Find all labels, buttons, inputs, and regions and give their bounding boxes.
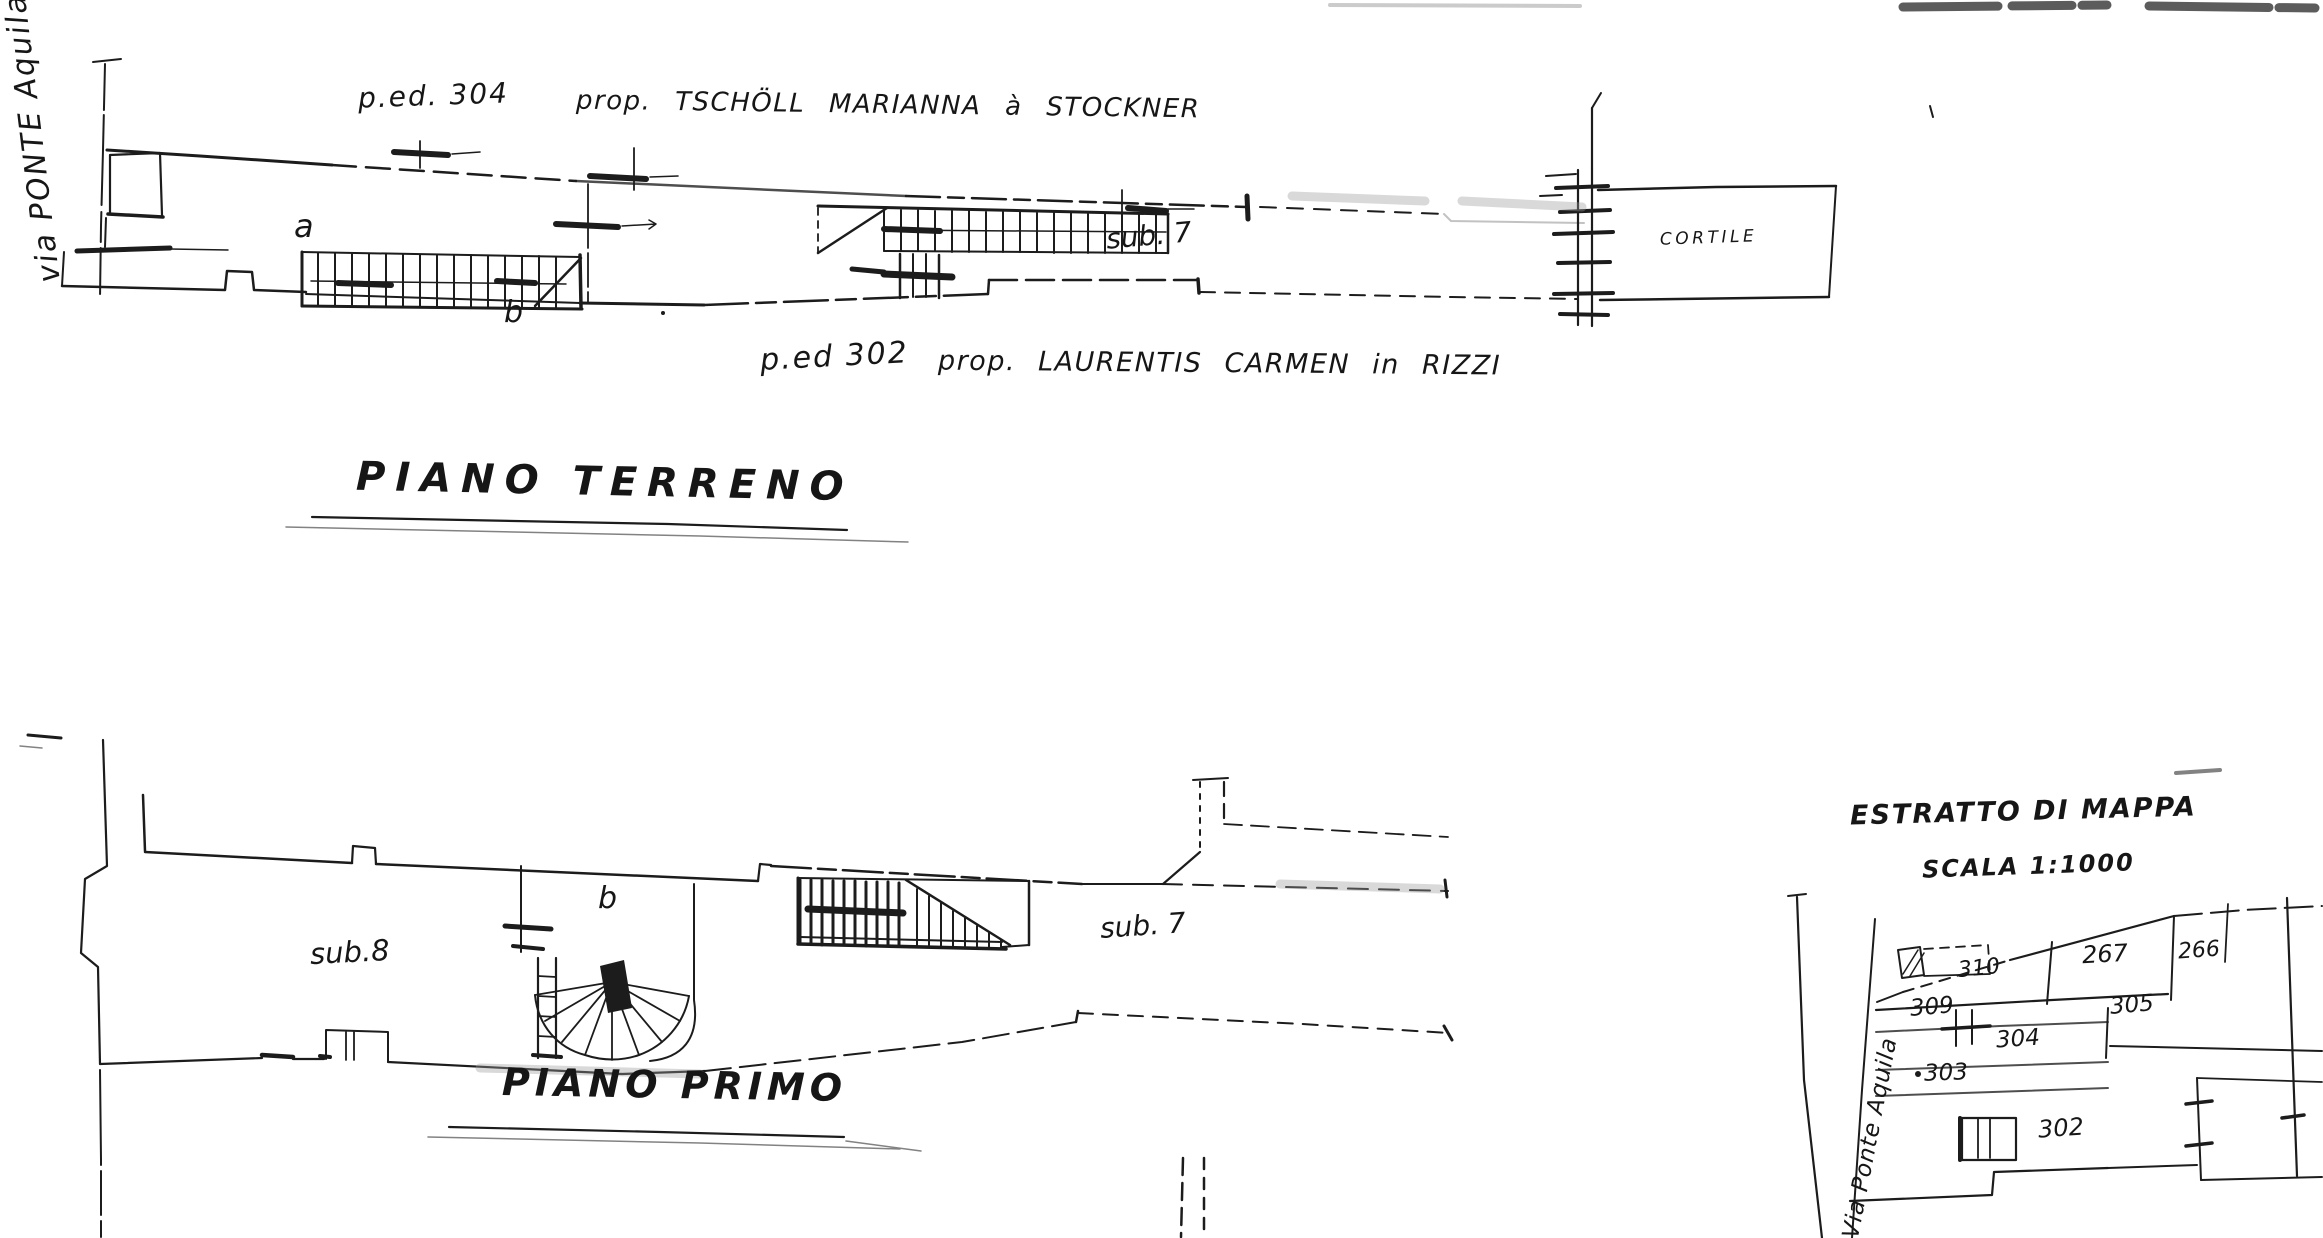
door-opening bbox=[394, 141, 480, 168]
room-b-label-ground: b bbox=[504, 298, 523, 328]
left-boundary bbox=[81, 740, 107, 1064]
door-opening bbox=[590, 148, 678, 190]
map-parcel-305-label: 305 bbox=[2109, 992, 2155, 1019]
first-floor-title: PIANO PRIMO bbox=[502, 1063, 848, 1107]
door-opening bbox=[556, 220, 656, 229]
ground-title-underline bbox=[286, 517, 908, 542]
stair-first-floor bbox=[798, 878, 1029, 949]
parcel-304-label: p.ed. 304 bbox=[358, 79, 510, 112]
section-dashed-lines bbox=[1181, 1158, 1204, 1237]
room-a-label: a bbox=[294, 210, 314, 242]
map-parcel-304-label: 304 bbox=[1995, 1026, 2040, 1052]
upper-connector-lines bbox=[1163, 778, 1448, 884]
cortile-label: CORTILE bbox=[1660, 228, 1758, 248]
map-scale-label: SCALA 1:1000 bbox=[1922, 850, 2136, 881]
sub7-ground-label: sub. 7 bbox=[1105, 218, 1193, 253]
plan-drawing bbox=[0, 0, 2323, 1238]
map-parcel-267-label: 267 bbox=[2081, 941, 2128, 967]
window-bay bbox=[320, 1030, 388, 1062]
first-title-underline bbox=[428, 1127, 921, 1151]
map-parcel-310-label: 310 bbox=[1957, 956, 2001, 982]
owner-302-label: prop. LAURENTIS CARMEN in RIZZI bbox=[938, 348, 1501, 380]
sub8-label: sub.8 bbox=[309, 936, 390, 969]
stair-b-ground bbox=[302, 252, 582, 309]
scanned-floorplan-page: via PONTE Aquila p.ed. 304 prop. TSCHÖLL… bbox=[0, 0, 2323, 1238]
parcel-302-label: p.ed 302 bbox=[759, 338, 909, 376]
sub7-first-label: sub. 7 bbox=[1099, 909, 1186, 943]
map-parcel-303-label: 303 bbox=[1924, 1061, 1969, 1086]
first-floor-plan bbox=[20, 735, 1452, 1237]
map-street-line-left bbox=[1797, 897, 1822, 1238]
ground-floor-title: PIANO TERRENO bbox=[356, 457, 854, 507]
street-boundary-line bbox=[100, 64, 105, 298]
map-parcel-302-label: 302 bbox=[2037, 1114, 2084, 1141]
map-parcel-266-label: 266 bbox=[2177, 939, 2220, 964]
room-b-label-first: b bbox=[598, 884, 617, 914]
scan-artifact-top bbox=[1330, 5, 2315, 773]
map-parcel-309-label: 309 bbox=[1909, 994, 1955, 1021]
